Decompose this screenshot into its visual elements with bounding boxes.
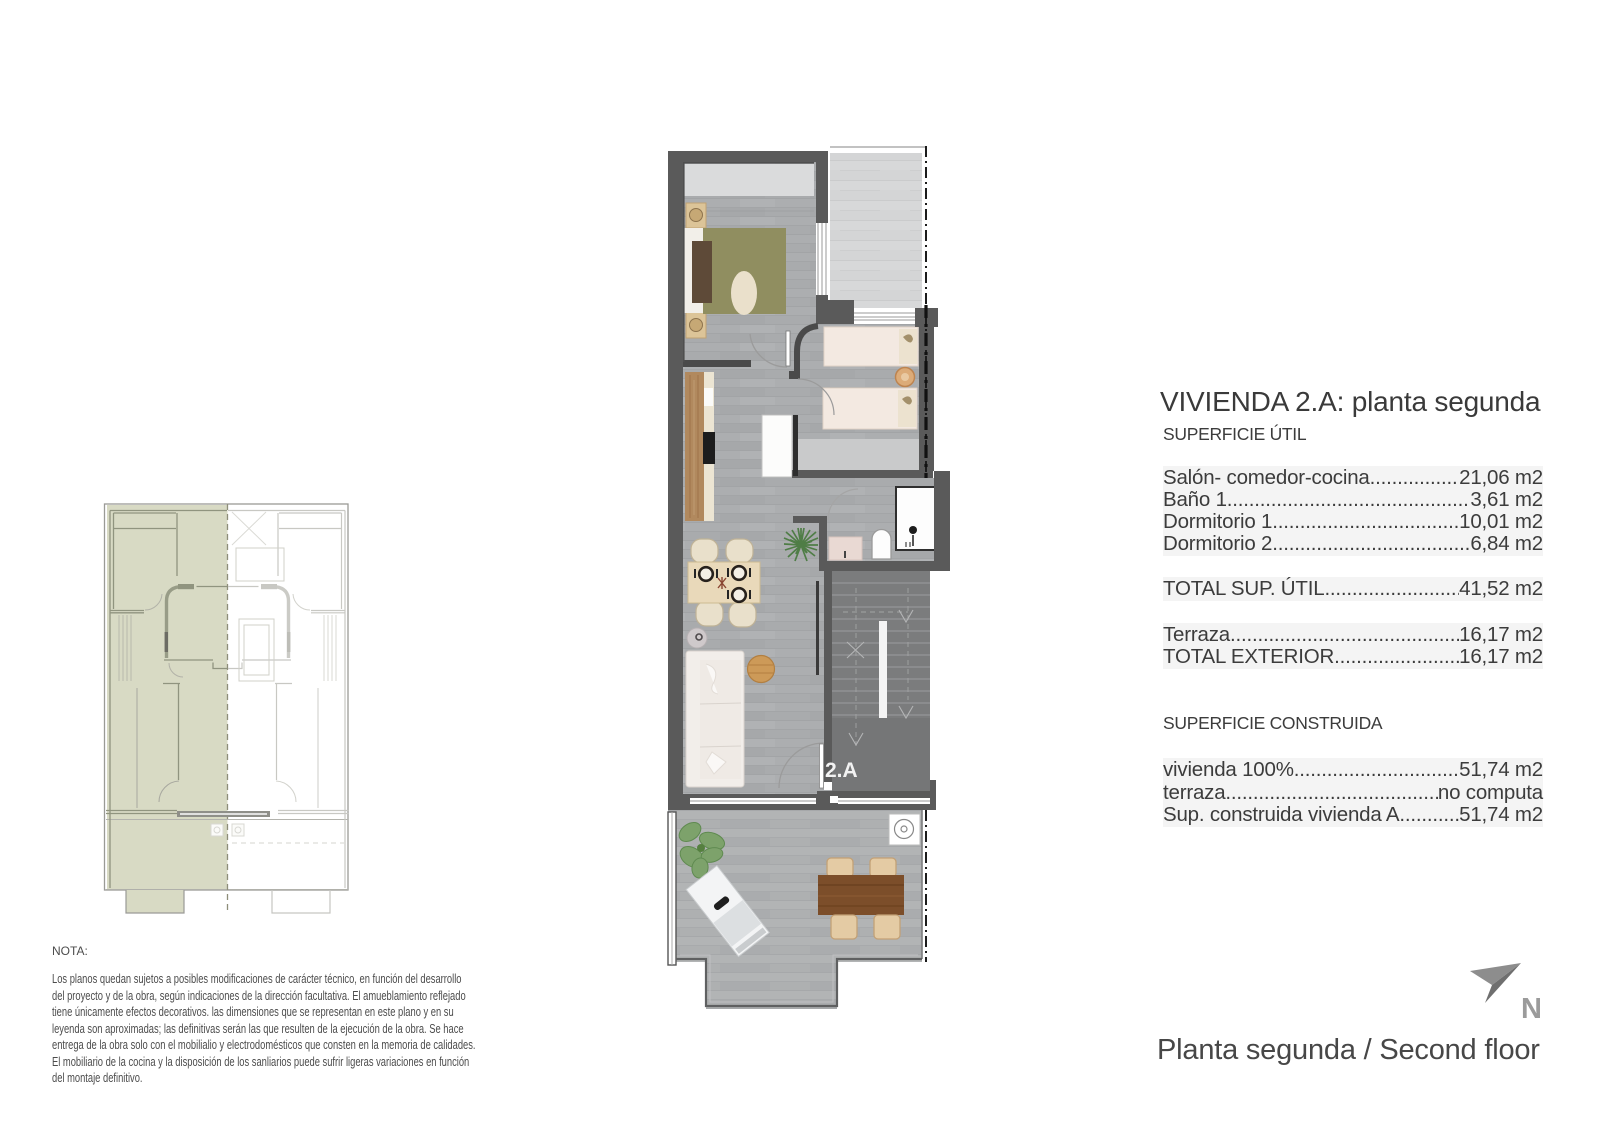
svg-text:2.A: 2.A — [825, 759, 858, 782]
